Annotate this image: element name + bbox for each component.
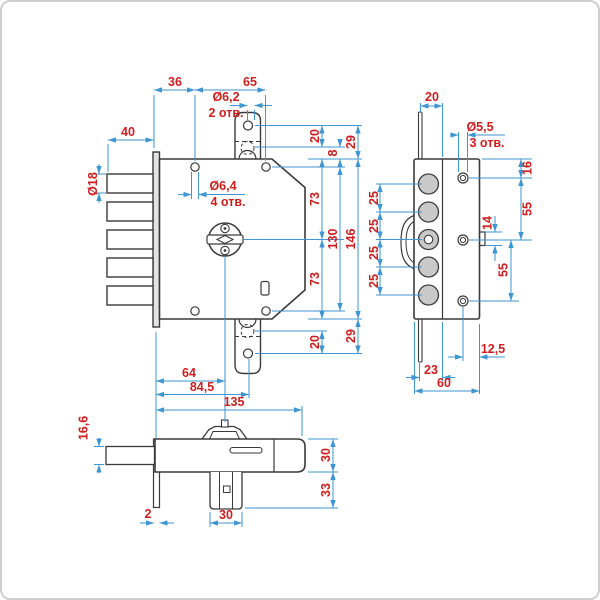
dim-face-hole-qty: 3 отв.	[469, 136, 504, 150]
dim-tab-overhang-bottom: 29	[344, 329, 358, 343]
fixing-hole-tl	[191, 163, 199, 171]
dim-body-height: 146	[344, 229, 358, 250]
dim-cylinder-offset: 64	[182, 366, 196, 380]
dim-case-depth: 30	[319, 448, 333, 462]
deadbolt-2	[107, 202, 153, 221]
dim-bolt-height: 16,6	[77, 416, 91, 440]
dim-tab-hole-qty: 2 отв.	[208, 106, 243, 120]
dim-stop-height: 14	[481, 216, 495, 230]
dim-bolt-pitch-3: 25	[367, 246, 381, 260]
bottom-view	[106, 420, 305, 509]
dim-cylinder-depth: 33	[319, 483, 333, 497]
housing-cam	[224, 486, 231, 493]
dim-cylinder-width: 30	[219, 508, 233, 522]
dim-face-hole-dia: Ø5,5	[466, 120, 493, 134]
dim-plate-thickness: 2	[145, 507, 152, 521]
dim-rod-inset: 23	[424, 363, 438, 377]
deadbolt-3	[107, 230, 153, 249]
key-cylinder	[207, 223, 243, 256]
dim-lower-half: 73	[308, 272, 322, 286]
dim-hole-edge-offset: 12,5	[481, 342, 505, 356]
cylinder-guard	[401, 216, 414, 269]
deadbolt-5	[107, 286, 153, 305]
bolt-end-3-pin	[424, 235, 433, 244]
dim-bolt-pitch-1: 25	[367, 191, 381, 205]
dim-tab-hole-bottom: 20	[308, 335, 322, 349]
case-slot	[261, 282, 269, 296]
dim-bolt-dia: Ø18	[86, 172, 100, 196]
bolt-profile	[106, 447, 155, 465]
dim-hole-span-v: 130	[326, 229, 340, 250]
dim-body-width: 135	[224, 395, 245, 409]
bottom-body-outline	[155, 439, 305, 472]
dim-rod-offset: 20	[425, 90, 439, 104]
lock-technical-drawing: 36 65 Ø6,2 2 отв. 40 Ø6,4 4 отв. Ø18 20 …	[2, 2, 600, 600]
dim-top-hole-offset: 16	[521, 161, 535, 175]
dim-edge-top: 8	[326, 149, 340, 156]
fixing-hole-tr	[262, 163, 270, 171]
dim-upper-half: 73	[308, 192, 322, 206]
dim-body-depth: 60	[437, 376, 451, 390]
dim-tab-overhang-top: 29	[344, 135, 358, 149]
dim-corner-hole-qty: 4 отв.	[210, 195, 245, 209]
dim-bolt-pitch-2: 25	[367, 219, 381, 233]
deadbolt-1	[107, 174, 153, 193]
dim-lower-hole-spacing: 55	[497, 263, 511, 277]
deadbolt-4	[107, 258, 153, 277]
dim-bolt-pitch-4: 25	[367, 274, 381, 288]
link-rod-top	[419, 112, 423, 159]
fixing-hole-bl	[191, 307, 199, 315]
body-slot	[230, 448, 262, 454]
dim-corner-hole-dia: Ø6,4	[209, 179, 236, 193]
dim-tab-hole-offset: 84,5	[190, 380, 214, 394]
dim-tab-hole-top: 20	[308, 129, 322, 143]
dim-tab-hole-dia: Ø6,2	[212, 90, 239, 104]
drawing-canvas: 36 65 Ø6,2 2 отв. 40 Ø6,4 4 отв. Ø18 20 …	[0, 0, 600, 600]
side-stop-tab	[480, 232, 486, 246]
front-view	[107, 113, 305, 374]
dim-plate-to-holes: 36	[168, 75, 182, 89]
tab-hole-top	[244, 121, 253, 130]
dim-hole-span-h: 65	[243, 75, 257, 89]
escutcheon-profile	[202, 427, 247, 440]
fixing-hole-br	[262, 307, 270, 315]
faceplate	[153, 152, 160, 327]
dim-bolt-throw: 40	[121, 125, 135, 139]
tab-hole-bottom	[244, 349, 253, 358]
link-rod-bottom	[419, 319, 423, 362]
dim-upper-hole-spacing: 55	[521, 202, 535, 216]
